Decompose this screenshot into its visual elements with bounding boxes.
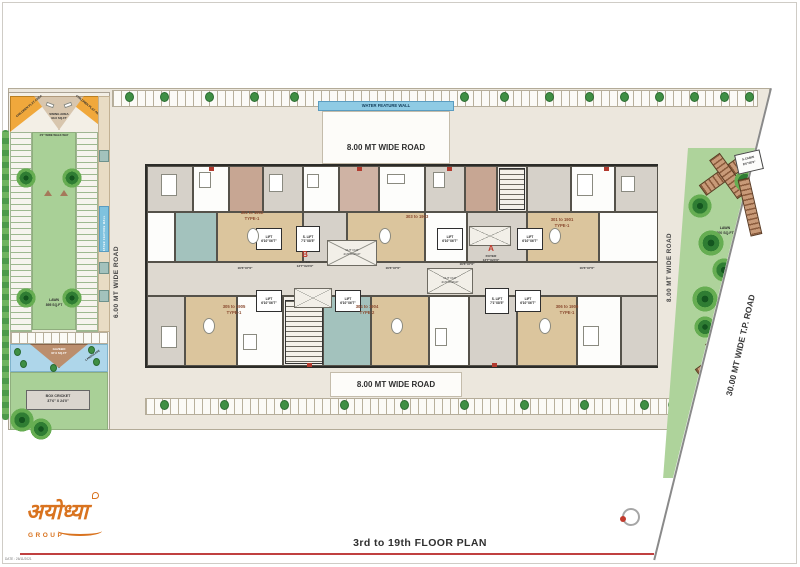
garden-water-wall: WATER FEATURE WALL <box>99 206 109 252</box>
passage-dim: 16'6"X7'6" <box>447 262 487 266</box>
shrub <box>580 400 589 410</box>
shrub <box>340 400 349 410</box>
cut-out: CUT OUT21'0"X10'10" <box>327 240 377 266</box>
dining-table <box>379 228 391 244</box>
shrub <box>205 92 214 102</box>
tree-row <box>2 130 9 420</box>
passage-dim: 16'6"X7'6" <box>225 266 265 270</box>
unit-label-306: 306 to 1906TYPE-1 <box>537 304 597 316</box>
top-road-label: 8.00 MT WIDE ROAD <box>322 111 450 164</box>
walkway-band <box>10 332 108 344</box>
unit-label-303: 303 to 1903 <box>387 214 447 220</box>
shrub <box>93 358 100 366</box>
shrub <box>88 346 95 354</box>
dining-table <box>391 318 403 334</box>
building: LIFT6'10"X6'7" LIFT6'10"X6'7" LIFT6'10"X… <box>145 164 658 368</box>
dining-table <box>247 228 259 244</box>
room <box>425 166 465 212</box>
shrub <box>520 400 529 410</box>
furniture <box>161 174 177 196</box>
logo-brand: अयोध्या <box>26 496 88 526</box>
unit-label-302: 302 to 1902TYPE-1 <box>222 210 282 222</box>
palm-tree <box>16 168 36 188</box>
shrub <box>585 92 594 102</box>
shrub <box>690 92 699 102</box>
floor-plan-canvas: 30.00 MT WIDE T.P. ROAD WATER FEATURE WA… <box>0 0 800 567</box>
unit-label-304: 304 to 1904TYPE-2 <box>337 304 397 316</box>
bottom-road-label: 8.00 MT WIDE ROAD <box>330 372 462 397</box>
box-cricket: BOX CRICKET37'6" X 24'0" <box>26 390 90 410</box>
swing-area-label: SWING AREA93.0 SQ.FT <box>40 112 78 120</box>
left-lawn-label: LAWN895 SQ.FT <box>40 298 68 308</box>
furniture <box>583 326 599 346</box>
palm-tree <box>62 168 82 188</box>
shrub <box>640 400 649 410</box>
ac-unit-mark <box>357 167 362 171</box>
shrub <box>460 92 469 102</box>
date-note: DATE : 26/11/2021 <box>5 557 32 561</box>
shrub <box>400 400 409 410</box>
ac-unit-mark <box>209 167 214 171</box>
shrub <box>745 92 754 102</box>
shrub <box>250 92 259 102</box>
furniture <box>621 176 635 192</box>
furniture <box>243 334 257 350</box>
room <box>175 212 217 262</box>
shrub <box>620 92 629 102</box>
logo-group-text: GROUP <box>28 532 64 539</box>
cut-out <box>294 288 332 308</box>
shrub <box>545 92 554 102</box>
footer-rule <box>20 553 654 555</box>
planter-triangle <box>44 190 52 196</box>
lift-box: LIFT6'10"X6'7" <box>517 228 543 250</box>
room <box>527 166 571 212</box>
furniture <box>161 326 177 348</box>
service-lift-box: S. LIFT7'1"X8'5" <box>296 226 320 252</box>
garden-seat <box>99 262 109 274</box>
palm-tree <box>688 194 712 218</box>
tower-b-letter: B <box>297 250 313 259</box>
furniture <box>387 174 405 184</box>
lift-box: LIFT6'10"X6'7" <box>256 228 282 250</box>
plan-title: 3rd to 19th FLOOR PLAN <box>270 537 570 549</box>
room <box>229 166 263 212</box>
gazebo-label: GAZEBO97.0 SQ.FT <box>40 347 78 355</box>
left-road-label: 6.00 MT WIDE ROAD <box>113 222 120 318</box>
room <box>465 166 497 212</box>
logo-swash <box>58 526 102 536</box>
compass-north-dot <box>620 516 626 522</box>
lift-box: LIFT6'10"X6'7" <box>437 228 463 250</box>
shrub <box>125 92 134 102</box>
room <box>379 166 425 212</box>
cut-out <box>469 226 511 246</box>
shrub <box>460 400 469 410</box>
tower-a-letter: A <box>483 244 499 253</box>
walkway-label: 4'0" WIDE WALK WAY <box>32 134 76 138</box>
shrub <box>280 400 289 410</box>
diya-icon <box>92 492 99 499</box>
passage-dim: 16'6"X7'6" <box>373 266 413 270</box>
room <box>339 166 379 212</box>
ac-unit-mark <box>604 167 609 171</box>
palm-tree <box>16 288 36 308</box>
cut-out: CUT OUT21'0"X10'10" <box>427 268 473 294</box>
garden-seat <box>99 290 109 302</box>
ac-unit-mark <box>447 167 452 171</box>
dining-table <box>549 228 561 244</box>
furniture <box>577 174 593 196</box>
room <box>621 296 658 366</box>
right-road-label: 8.00 MT WIDE ROAD <box>666 224 673 302</box>
ac-unit-mark <box>492 363 497 367</box>
unit-label-301: 301 to 1901TYPE-1 <box>532 217 592 229</box>
shrub <box>160 400 169 410</box>
palm-tree <box>30 418 52 440</box>
shrub <box>655 92 664 102</box>
shrub <box>220 400 229 410</box>
room <box>147 212 175 262</box>
ac-unit-mark <box>307 363 312 367</box>
dining-table <box>539 318 551 334</box>
furniture <box>269 174 283 192</box>
planter-triangle <box>60 190 68 196</box>
staircase-bottom <box>285 300 323 364</box>
dining-table <box>203 318 215 334</box>
unit-label-305: 305 to 1905TYPE-1 <box>204 304 264 316</box>
shrub <box>20 360 27 368</box>
staircase-top <box>499 168 525 210</box>
room <box>303 166 339 212</box>
shrub <box>14 348 21 356</box>
shrub <box>290 92 299 102</box>
foyer-b-label: FOYER13'7"X24'6" <box>285 260 325 269</box>
furniture <box>433 172 445 188</box>
palm-tree <box>698 230 724 256</box>
palm-tree <box>692 286 718 312</box>
passage-dim: 16'6"X7'6" <box>567 266 607 270</box>
room <box>599 212 658 262</box>
shrub <box>500 92 509 102</box>
shrub <box>50 364 57 372</box>
water-feature-wall: WATER FEATURE WALL <box>318 101 454 111</box>
furniture <box>307 174 319 188</box>
furniture <box>199 172 211 188</box>
furniture <box>435 328 447 346</box>
service-lift-box: S. LIFT7'1"X8'5" <box>485 288 509 314</box>
garden-seat <box>99 150 109 162</box>
shrub <box>160 92 169 102</box>
shrub <box>720 92 729 102</box>
